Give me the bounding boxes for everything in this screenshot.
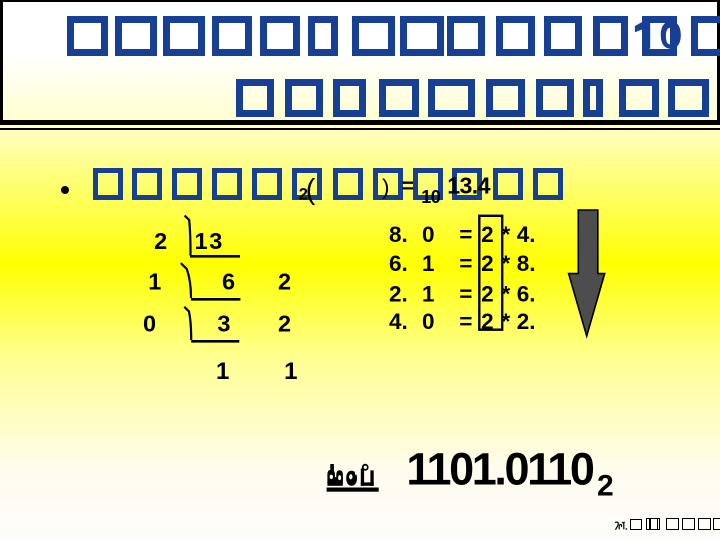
svg-text:2: 2: [481, 281, 494, 306]
svg-text:1: 1: [284, 358, 297, 385]
svg-text:1: 1: [422, 251, 435, 276]
svg-text:(: (: [306, 174, 316, 206]
svg-text:2: 2: [278, 311, 291, 337]
svg-text:0: 0: [422, 222, 435, 247]
svg-text:1: 1: [216, 358, 229, 385]
svg-text:0: 0: [143, 311, 156, 337]
svg-text:1: 1: [148, 269, 161, 295]
svg-text:2: 2: [278, 269, 291, 295]
svg-text:=: =: [402, 175, 414, 198]
svg-text:): ): [382, 174, 390, 199]
svg-text:6.: 6.: [389, 251, 408, 276]
svg-text:=: =: [459, 251, 472, 276]
svg-text:2: 2: [597, 470, 614, 503]
svg-text:1: 1: [195, 228, 208, 254]
svg-text:=: =: [459, 309, 472, 334]
svg-text:2: 2: [481, 222, 494, 247]
svg-text:13.4: 13.4: [447, 173, 490, 199]
svg-text:6: 6: [222, 269, 235, 295]
svg-text:2: 2: [154, 228, 167, 254]
svg-text:2: 2: [481, 251, 494, 276]
svg-text:6.: 6.: [517, 281, 536, 306]
svg-text:0: 0: [422, 309, 435, 334]
svg-text:8.: 8.: [517, 251, 536, 276]
svg-text:1101.0110: 1101.0110: [406, 443, 594, 494]
svg-text:2.: 2.: [517, 309, 536, 334]
svg-text:2.: 2.: [389, 281, 408, 306]
svg-text:=: =: [459, 222, 472, 247]
svg-text:4.: 4.: [517, 222, 536, 247]
svg-text:10: 10: [421, 187, 441, 207]
svg-text:=: =: [459, 281, 472, 306]
svg-text:8.: 8.: [389, 222, 408, 247]
svg-text:3: 3: [209, 228, 222, 254]
svg-text:3: 3: [217, 311, 230, 337]
svg-text:4.: 4.: [389, 309, 408, 334]
svg-text:1: 1: [422, 281, 435, 306]
